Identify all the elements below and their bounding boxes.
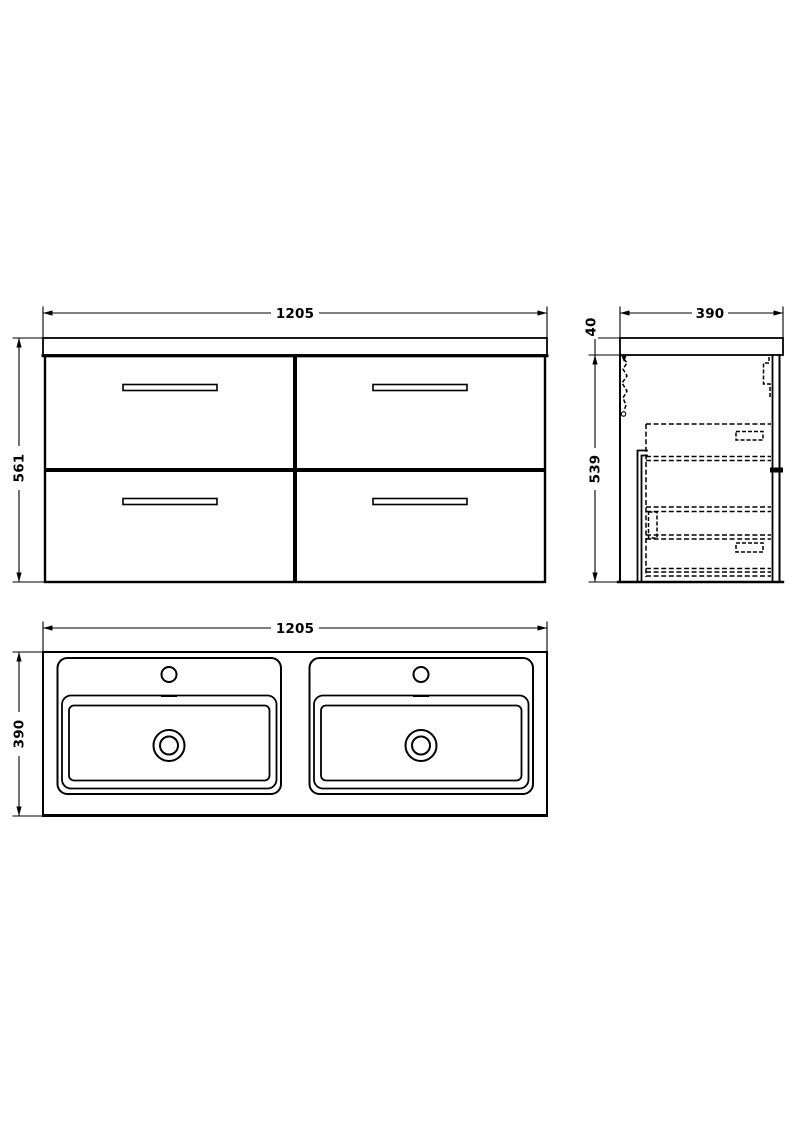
waste-outer (406, 730, 437, 761)
drawer-handle-bottom-left (123, 499, 217, 505)
front-width-dimension: 1205 (43, 305, 547, 338)
side-worktop-thickness-label: 40 (584, 317, 600, 336)
arrowhead-bottom (16, 807, 21, 817)
basin-right (310, 658, 534, 794)
arrowhead-left (620, 310, 630, 315)
bowl-outer (62, 696, 277, 789)
bowl-inner (69, 706, 270, 781)
side-depth-label: 390 (696, 306, 725, 322)
basin-rim (58, 658, 282, 794)
side-cabinet-height-dimension: 539 (587, 355, 618, 582)
basin-left (58, 658, 282, 794)
waste-inner (160, 737, 178, 755)
drawer-handle-top-right (373, 385, 467, 391)
worktop-front (43, 338, 547, 355)
arrowhead-right (538, 625, 548, 630)
front-height-dimension: 561 (11, 338, 45, 582)
bracket-screw (621, 412, 625, 416)
front-view: 1205 561 (11, 305, 547, 582)
side-depth-dimension: 390 (620, 305, 783, 338)
arrowhead-top (16, 338, 21, 348)
technical-drawing-svg: 1205 561 (0, 0, 800, 1132)
basin-rim (310, 658, 534, 794)
plan-depth-label: 390 (12, 720, 28, 749)
drawer-hidden-lines (646, 424, 771, 577)
arrowhead-left (43, 310, 53, 315)
tap-hole (414, 667, 429, 682)
worktop-plan (43, 652, 547, 816)
drawer-handle-top-left (123, 385, 217, 391)
plan-view: 1205 390 (11, 620, 547, 816)
drawer-handle-bottom-right (373, 499, 467, 505)
tap-hole (162, 667, 177, 682)
wall-bracket-hidden (621, 356, 627, 416)
plan-width-label: 1205 (276, 621, 314, 637)
technical-drawing-page: 1205 561 (0, 0, 800, 1132)
upper-drawer-handle-hidden (736, 432, 763, 441)
front-height-label: 561 (12, 454, 28, 483)
front-width-label: 1205 (276, 306, 314, 322)
arrowhead-top (16, 652, 21, 662)
arrowhead-bottom (16, 573, 21, 583)
arrowhead-top (592, 355, 597, 365)
arrowhead-right (538, 310, 548, 315)
corner-bracket-hidden (764, 357, 771, 398)
lower-drawer-handle-hidden (736, 543, 763, 552)
arrowhead-left (43, 625, 53, 630)
worktop-side (620, 338, 783, 355)
bowl-inner (321, 706, 522, 781)
drawer-front-gap-notch (770, 468, 783, 473)
side-cabinet-height-label: 539 (588, 455, 604, 484)
plan-depth-dimension: 390 (11, 652, 43, 816)
lower-drawer-side-hidden (649, 512, 658, 538)
arrowhead-bottom (592, 573, 597, 583)
arrowhead-right (774, 310, 784, 315)
waste-inner (412, 737, 430, 755)
plan-width-dimension: 1205 (43, 620, 547, 652)
bowl-outer (314, 696, 529, 789)
bracket-hidden-outline (622, 359, 627, 411)
side-worktop-thickness-dimension: 40 (583, 313, 620, 355)
side-view: 390 40 539 (583, 305, 783, 582)
waste-outer (154, 730, 185, 761)
